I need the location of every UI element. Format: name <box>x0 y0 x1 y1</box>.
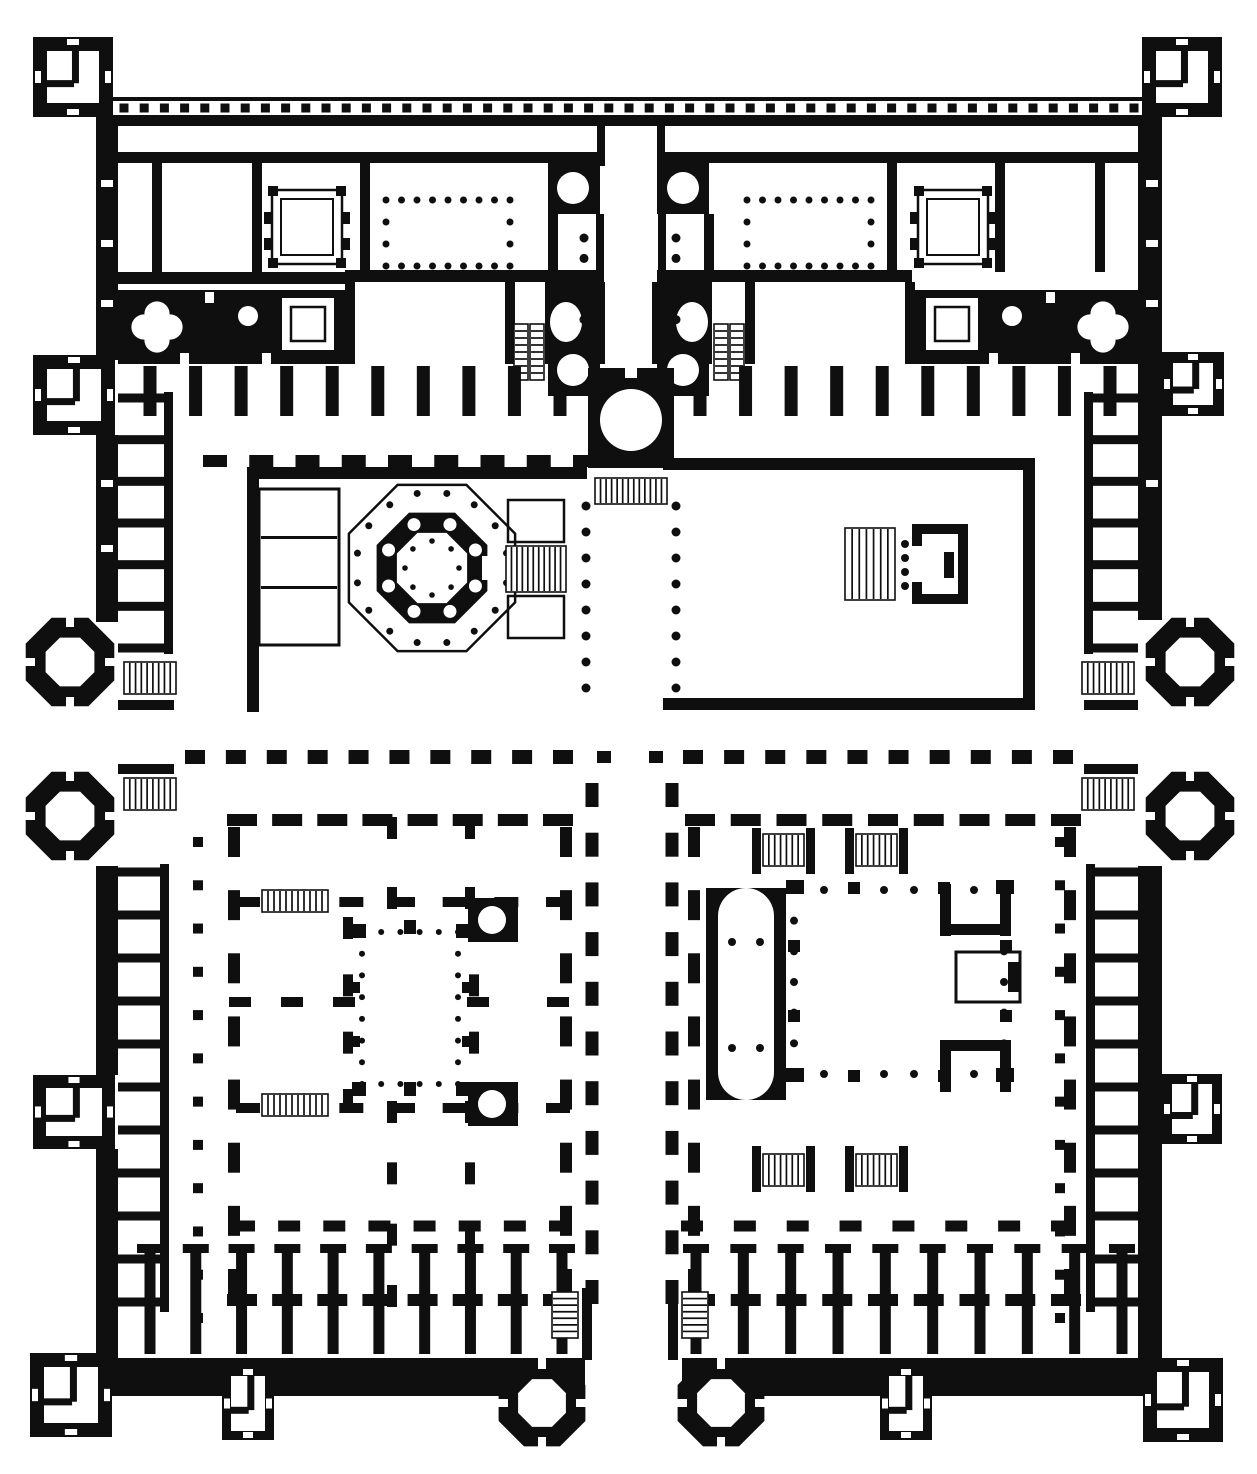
cardo-colonnade-nw <box>580 234 589 243</box>
gallery-west-upper-rungs <box>118 602 170 611</box>
east-quad-wall-north <box>685 814 715 826</box>
tower-east-gate-north <box>1225 658 1236 666</box>
mid-dash-wall-west <box>342 455 366 467</box>
bath-west-door-3 <box>262 353 271 364</box>
west-quad-partition-3 <box>387 887 397 909</box>
gallery-east-lower-rungs <box>1092 954 1138 963</box>
lower-cardo-wall-east <box>666 882 679 906</box>
tower-south-square-west <box>266 1399 272 1409</box>
lower-cardo-wall-east <box>666 1230 679 1254</box>
mausoleum-inner-columns <box>402 565 408 571</box>
decumanus-colonnade-east <box>1012 750 1032 764</box>
north-wall-crenellation <box>503 104 512 113</box>
west-quad-partition-1 <box>236 897 260 907</box>
bath-east-door-2 <box>1071 353 1080 364</box>
apsidal-hall-column-4 <box>756 1044 764 1052</box>
south-gallery-stylobate-w <box>368 1221 390 1232</box>
tower-southeast <box>1215 1394 1221 1406</box>
gallery-west-columns <box>193 1183 203 1193</box>
north-wall-crenellation <box>221 104 230 113</box>
west-quad-partition-6 <box>343 1089 353 1111</box>
west-quad-partition-9 <box>387 1162 397 1184</box>
east-quad-court-columns <box>910 1070 918 1078</box>
south-gallery-piers-east <box>927 1253 938 1354</box>
south-gallery-stylobate-w <box>414 1221 436 1232</box>
east-quad-court-columns <box>790 1039 798 1047</box>
decumanus-colonnade-west <box>471 750 491 764</box>
temple-porch-columns <box>901 582 909 590</box>
tower-west-upper <box>68 357 80 363</box>
west-quad-court-columns <box>397 929 403 935</box>
west-quad-stair-north <box>262 890 328 912</box>
south-gallery-stylobate-e <box>734 1221 756 1232</box>
tower-south-square-east <box>882 1399 888 1409</box>
tower-east-upper <box>1188 354 1198 360</box>
west-quad-court-columns <box>378 1081 384 1087</box>
south-gallery-piers-east <box>730 1244 756 1253</box>
mausoleum-peristyle-columns <box>471 628 478 635</box>
mid-dash-wall-west <box>203 455 227 467</box>
east-gate-jamb-s <box>1084 764 1138 774</box>
lower-cardo-wall-west <box>586 783 599 807</box>
tower-east-gate-north <box>1144 658 1155 666</box>
mausoleum-inner-columns <box>410 546 416 552</box>
mausoleum-inner-columns <box>456 565 462 571</box>
north-wall-crenellation <box>887 104 896 113</box>
north-wall-crenellation <box>726 104 735 113</box>
south-gallery-stylobate-w <box>504 1221 526 1232</box>
decumanus-colonnade-east <box>806 750 826 764</box>
south-gallery-piers-east <box>1069 1253 1080 1354</box>
east-quad-wall-west <box>688 827 700 857</box>
upper-cross-wall-west <box>118 272 348 284</box>
west-quad-court-columns <box>455 972 461 978</box>
portico-piers-west <box>235 366 248 416</box>
east-quad-court-columns <box>820 886 828 894</box>
west-wall-slit-1 <box>101 180 113 187</box>
tower-east-upper <box>1173 387 1194 394</box>
tower-south-gate-east <box>755 1399 766 1407</box>
shrine-east-pad-7 <box>987 212 996 224</box>
south-gallery-piers-east <box>738 1253 749 1354</box>
gallery-east-lower-rungs <box>1092 1212 1138 1221</box>
mausoleum-peristyle-columns <box>386 628 393 635</box>
pillared-hall-east-columns <box>790 197 797 204</box>
tower-west-gate-north <box>66 616 74 627</box>
portico-piers-west <box>144 366 157 416</box>
eq-room-wall-6 <box>951 1040 1007 1051</box>
tower-east-gate-north <box>1186 616 1194 627</box>
tower-southwest <box>32 1389 38 1401</box>
eq-court-pad-12 <box>1000 1010 1012 1022</box>
cardo-colonnade-nw <box>580 315 589 324</box>
south-gallery-piers-west <box>229 1244 255 1253</box>
decumanus-colonnade-east <box>971 750 991 764</box>
lower-cardo-wall-west <box>586 1081 599 1105</box>
lower-cardo-wall-east <box>666 1032 679 1056</box>
eq-court-pad-7 <box>848 1070 860 1082</box>
apsidal-hall-column-1 <box>728 938 736 946</box>
south-gallery-piers-east <box>920 1244 946 1253</box>
apsed-niche-east <box>676 302 708 342</box>
north-wall-crenellation <box>988 104 997 113</box>
north-wall-crenellation <box>1049 104 1058 113</box>
gallery-east-columns <box>1055 1183 1065 1193</box>
tower-northwest <box>47 80 74 87</box>
tower-west-gate-north <box>24 658 35 666</box>
gallery-west-lower-rungs <box>118 1169 166 1178</box>
south-gallery-stylobate-e <box>945 1221 967 1232</box>
decumanus-colonnade-east <box>724 750 744 764</box>
portico-piers-east <box>921 366 934 416</box>
tower-south-square-east <box>901 1432 911 1438</box>
mid-dash-wall-west <box>434 455 458 467</box>
precinct-hall-divider-2 <box>261 586 337 589</box>
cardo-side-wall-e <box>704 214 714 272</box>
decumanus-colonnade-west <box>308 750 328 764</box>
decumanus-colonnade-center <box>597 751 611 763</box>
lower-cardo-wall-east <box>666 783 679 807</box>
east-quad-wall-north <box>960 814 990 826</box>
gallery-west-upper-rungs <box>118 519 170 528</box>
lower-cardo-wall-west <box>586 982 599 1006</box>
gallery-west-columns <box>193 1097 203 1107</box>
gallery-west-lower-rungs <box>118 954 166 963</box>
pillared-hall-east-columns <box>852 197 859 204</box>
south-gallery-piers-west <box>320 1244 346 1253</box>
pillared-hall-west-columns <box>383 219 390 226</box>
pillared-hall-east-columns <box>775 197 782 204</box>
wq-court-pad-7 <box>462 982 476 993</box>
portico-piers-east <box>739 366 752 416</box>
gallery-west-upper-rungs <box>118 477 170 486</box>
pillared-hall-east-columns <box>837 197 844 204</box>
wq-court-pad-8 <box>462 1036 476 1047</box>
bath-east-door-1 <box>1046 292 1055 303</box>
south-gallery-piers-west <box>183 1244 209 1253</box>
mausoleum-peristyle-columns <box>443 490 450 497</box>
gallery-west-lower-rungs <box>118 1083 166 1092</box>
mausoleum-niches <box>408 605 421 618</box>
pillared-hall-west-columns <box>460 197 467 204</box>
tower-west-upper <box>107 389 113 401</box>
pillared-hall-east-columns <box>837 263 844 270</box>
mausoleum-peristyle-columns <box>492 607 499 614</box>
tower-south-gate-west <box>497 1399 508 1407</box>
south-gallery-stylobate-w <box>278 1221 300 1232</box>
decumanus-colonnade-east <box>683 750 703 764</box>
upper-room-wall-w2 <box>252 163 262 272</box>
tower-east-upper <box>1216 379 1222 389</box>
eq-stair-jamb-n4 <box>899 828 908 874</box>
north-wall-crenellation <box>443 104 452 113</box>
tower-northeast <box>1176 109 1188 115</box>
gallery-west-columns <box>193 1226 203 1236</box>
west-quad-partition-5 <box>333 997 355 1007</box>
tower-northeast <box>1176 39 1188 45</box>
north-wall-crenellation <box>1029 104 1038 113</box>
shrine-east-pad-6 <box>910 238 919 250</box>
mausoleum-peristyle-columns <box>365 607 372 614</box>
tower-southeast <box>1182 1372 1189 1407</box>
mausoleum-inner-columns <box>429 538 435 544</box>
south-gallery-piers-west <box>373 1253 384 1354</box>
pillared-hall-east-columns <box>852 263 859 270</box>
tower-south-gate-west <box>518 1379 566 1427</box>
west-wall-mid <box>96 435 118 622</box>
peristyle-colonnade-w <box>582 502 591 511</box>
shrine-west-pad-8 <box>341 238 350 250</box>
north-wall-crenellation <box>786 104 795 113</box>
north-gate-rotunda-sw <box>557 354 589 386</box>
eq-stair-jamb-s4 <box>899 1146 908 1192</box>
north-wall-crenellation <box>301 104 310 113</box>
portico-piers-east <box>1058 366 1071 416</box>
precinct-hall-divider-1 <box>261 536 337 539</box>
tower-west-gate-north <box>46 638 95 687</box>
tower-northwest <box>35 71 41 83</box>
pillared-hall-east-columns <box>868 241 875 248</box>
temple-cella-anta-n <box>912 524 922 546</box>
east-quad-wall-west <box>688 953 700 983</box>
shrine-east-pad-3 <box>914 258 924 268</box>
north-wall-crenellation <box>322 104 331 113</box>
west-quad-wall-west <box>228 953 240 983</box>
decumanus-colonnade-west <box>512 750 532 764</box>
wq-court-pad-9 <box>404 920 416 934</box>
temple-precinct-east <box>1023 458 1035 710</box>
gallery-east-lower-rungs <box>1092 997 1138 1006</box>
north-wall-crenellation <box>827 104 836 113</box>
south-gallery-piers-west <box>412 1244 438 1253</box>
south-gallery-stylobate-e <box>787 1221 809 1232</box>
east-quad-court-columns <box>1000 978 1008 986</box>
north-wall-crenellation <box>423 104 432 113</box>
pillared-hall-east-columns <box>806 197 813 204</box>
tower-west-upper <box>68 427 80 433</box>
west-gate-jamb-n <box>118 700 174 710</box>
apsed-niche-west <box>550 302 582 342</box>
south-gallery-stylobate-w <box>459 1221 481 1232</box>
tower-northeast <box>1144 71 1150 83</box>
shrine-east-pad-8 <box>987 238 996 250</box>
pillared-hall-east-columns <box>821 263 828 270</box>
portico-piers-west <box>508 366 521 416</box>
mid-dash-wall-west <box>481 455 505 467</box>
gallery-east-lower-rungs <box>1092 1298 1138 1307</box>
west-quad-partition-2 <box>236 1103 260 1113</box>
east-wall-upper <box>1138 117 1162 620</box>
west-quad-wall-west <box>228 1016 240 1046</box>
west-gate-jamb-s <box>118 764 174 774</box>
tower-southwest <box>104 1389 110 1401</box>
west-quad-partition-1 <box>443 897 467 907</box>
vestibule-door <box>625 368 637 378</box>
temple-altar <box>944 552 954 578</box>
peristyle-colonnade-w <box>582 658 591 667</box>
peristyle-colonnade-e <box>672 554 681 563</box>
tower-southwest <box>44 1398 72 1405</box>
mausoleum-inner-columns <box>448 584 454 590</box>
tower-east-upper <box>1192 363 1199 389</box>
tower-east-gate-south <box>1186 770 1194 781</box>
gallery-west-upper-rungs <box>118 644 170 653</box>
north-wall-crenellation <box>120 104 129 113</box>
west-gate-stair-n <box>124 662 176 694</box>
pillared-hall-east-columns <box>868 219 875 226</box>
mausoleum-inner-columns <box>410 584 416 590</box>
hall-floor-wall-west <box>345 270 600 282</box>
tower-south-gate-east <box>717 1437 725 1448</box>
west-quad-wall-east <box>560 953 572 983</box>
east-quad-wall-west <box>688 1080 700 1110</box>
west-quad-court-columns <box>436 929 442 935</box>
mausoleum-precinct-west <box>247 467 259 712</box>
tower-southeast <box>1177 1360 1189 1366</box>
peristyle-colonnade-e <box>672 632 681 641</box>
quatrefoil-room-east <box>1090 301 1115 326</box>
tower-west-gate-south <box>24 812 35 820</box>
tower-southwest <box>65 1355 77 1361</box>
mausoleum-door <box>482 556 508 580</box>
cardo-colonnade-ne <box>672 315 681 324</box>
tower-south-square-west <box>231 1407 249 1414</box>
pillared-hall-west-columns <box>445 263 452 270</box>
gallery-west-columns <box>193 1010 203 1020</box>
eq-stair-jamb-s3 <box>845 1146 854 1192</box>
upper-room-wall-w3 <box>360 163 370 270</box>
tower-northwest <box>105 71 111 83</box>
eq-room-wall-5 <box>940 1040 951 1092</box>
north-wall-crenellation <box>160 104 169 113</box>
east-wall-slit-1 <box>1146 180 1158 187</box>
west-gate-stair-s <box>124 778 176 810</box>
lower-cardo-wall-east <box>666 982 679 1006</box>
gallery-east-upper-rungs <box>1088 435 1138 444</box>
south-gallery-piers-east <box>1109 1244 1135 1253</box>
pillared-hall-west-columns <box>445 197 452 204</box>
peristyle-colonnade-e <box>672 502 681 511</box>
south-gallery-piers-east <box>880 1253 891 1354</box>
gallery-west-lower-rungs <box>118 868 166 877</box>
west-quad-partition-3 <box>387 817 397 839</box>
tower-south-gate-west <box>538 1358 546 1369</box>
south-gallery-piers-east <box>778 1244 804 1253</box>
south-gallery-piers-west <box>137 1244 163 1253</box>
pillared-hall-east-columns <box>806 263 813 270</box>
gallery-east-columns <box>1055 880 1065 890</box>
east-quad-wall-east <box>1064 827 1076 857</box>
south-gallery-stylobate-e <box>1051 1221 1073 1232</box>
pillared-hall-west-columns <box>491 197 498 204</box>
pillared-hall-west-columns <box>507 263 514 270</box>
north-wall-crenellation <box>140 104 149 113</box>
tower-south-square-east <box>889 1407 907 1414</box>
pillared-hall-west-columns <box>429 197 436 204</box>
portico-piers-east <box>785 366 798 416</box>
shrine-east-pad-5 <box>910 212 919 224</box>
west-quad-court-columns <box>359 994 365 1000</box>
east-quad-court-columns <box>880 886 888 894</box>
gallery-west-upper-bar <box>164 392 173 654</box>
tower-east-lower <box>1187 1136 1197 1142</box>
lower-cardo-wall-east <box>666 1081 679 1105</box>
wq-court-pad-3 <box>352 1082 366 1096</box>
north-wall-crenellation <box>382 104 391 113</box>
wq-court-pad-4 <box>456 1082 470 1096</box>
lower-cardo-wall-west <box>586 833 599 857</box>
temple-porch-columns <box>901 568 909 576</box>
tower-northwest <box>67 39 79 45</box>
upper-rooms-ceiling-west <box>118 152 597 163</box>
decumanus-colonnade-west <box>185 750 205 764</box>
east-wall-slit-3 <box>1146 300 1158 307</box>
tower-east-lower <box>1214 1104 1220 1114</box>
north-wall-crenellation <box>342 104 351 113</box>
south-gallery-stylobate-e <box>840 1221 862 1232</box>
east-quad-court-columns <box>880 1070 888 1078</box>
lower-cardo-wall-west <box>586 1032 599 1056</box>
gallery-west-lower-rungs <box>118 1298 166 1307</box>
west-quad-partition-5 <box>229 997 251 1007</box>
peristyle-colonnade-e <box>672 684 681 693</box>
tower-south-gate-west <box>576 1399 587 1407</box>
room-wall-e4 <box>745 282 755 364</box>
west-quad-court-columns <box>417 929 423 935</box>
north-wall-crenellation <box>625 104 634 113</box>
tower-southwest <box>65 1429 77 1435</box>
vestibule-rotunda <box>600 389 662 451</box>
gallery-east-columns <box>1055 967 1065 977</box>
tower-west-gate-north <box>105 658 116 666</box>
east-quad-wall-west <box>688 890 700 920</box>
pillared-hall-west-columns <box>476 197 483 204</box>
west-quad-partition-5 <box>281 997 303 1007</box>
gallery-east-lower-rungs <box>1092 1040 1138 1049</box>
shrine-west-pad-3 <box>268 258 278 268</box>
west-quad-partition-8 <box>467 997 489 1007</box>
portico-piers-west <box>189 366 202 416</box>
north-wall-crenellation <box>200 104 209 113</box>
decumanus-colonnade-west <box>267 750 287 764</box>
mausoleum-peristyle-columns <box>414 490 421 497</box>
round-room-west <box>238 306 258 326</box>
eq-stair-jamb-n3 <box>845 828 854 874</box>
pillared-hall-west-columns <box>398 197 405 204</box>
south-gallery-piers-east <box>975 1253 986 1354</box>
peristyle-colonnade-w <box>582 606 591 615</box>
mid-dash-wall-west <box>388 455 412 467</box>
tower-east-lower <box>1187 1076 1197 1082</box>
decumanus-colonnade-west <box>553 750 573 764</box>
west-quad-wall-north <box>317 814 347 826</box>
mausoleum-niches <box>382 544 395 557</box>
south-gallery-piers-west <box>274 1244 300 1253</box>
east-quad-wall-east <box>1064 1080 1076 1110</box>
apsidal-hall-column-3 <box>728 1044 736 1052</box>
tower-east-gate-south <box>1166 792 1215 841</box>
north-wall-crenellation <box>241 104 250 113</box>
east-quad-court-columns <box>820 1070 828 1078</box>
pillared-hall-east-columns <box>868 197 875 204</box>
tower-east-lower <box>1191 1084 1198 1115</box>
north-wall-crenellation <box>180 104 189 113</box>
wq-court-pad-5 <box>346 982 360 993</box>
south-gallery-piers-east <box>683 1244 709 1253</box>
mausoleum-niches <box>443 605 456 618</box>
round-room-east <box>1002 306 1022 326</box>
tower-south-square-east <box>901 1369 911 1375</box>
